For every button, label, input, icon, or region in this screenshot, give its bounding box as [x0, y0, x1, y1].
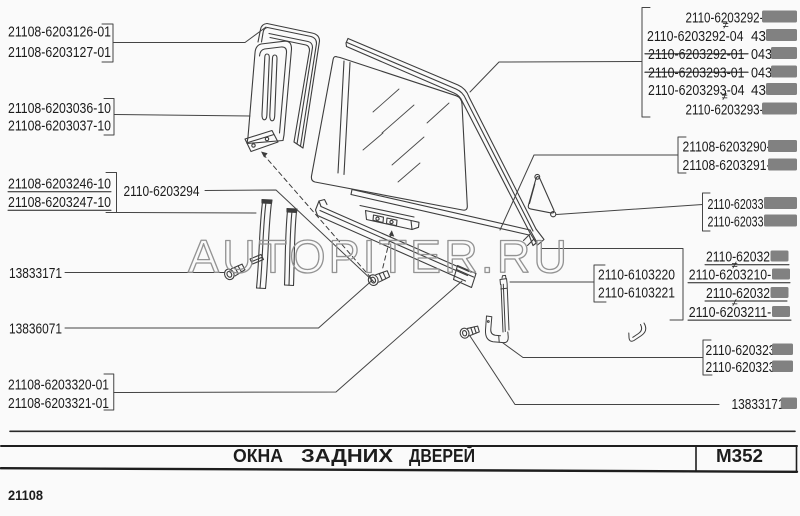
svg-text:2110-620323: 2110-620323	[706, 343, 776, 359]
svg-text:2110-6203292-01: 2110-6203292-01	[648, 47, 745, 63]
svg-text:2110-6203293-04: 2110-6203293-04	[648, 83, 745, 99]
svg-text:21108-6203126-01: 21108-6203126-01	[8, 25, 111, 41]
svg-text:43: 43	[751, 29, 766, 45]
svg-text:2110-62033: 2110-62033	[708, 215, 764, 231]
svg-text:21108-6203247-10: 21108-6203247-10	[8, 195, 111, 211]
svg-text:2110-62033: 2110-62033	[708, 197, 764, 213]
svg-text:21108-6203321-01: 21108-6203321-01	[8, 396, 109, 412]
svg-text:13833171: 13833171	[732, 397, 785, 413]
svg-text:ЗАДНИХ: ЗАДНИХ	[301, 446, 393, 466]
svg-text:2110-6203294: 2110-6203294	[124, 184, 200, 200]
svg-text:43: 43	[751, 83, 766, 99]
svg-text:ДВЕРЕЙ: ДВЕРЕЙ	[409, 445, 475, 466]
svg-text:2110-6103221: 2110-6103221	[598, 286, 675, 302]
svg-text:2110-6203293-01: 2110-6203293-01	[648, 66, 745, 82]
svg-text:≠: ≠	[722, 91, 728, 103]
svg-text:21108-6203036-10: 21108-6203036-10	[8, 101, 111, 117]
svg-text:ОКНА: ОКНА	[233, 446, 283, 466]
svg-text:2110-6203211-: 2110-6203211-	[689, 305, 772, 321]
svg-text:043: 043	[751, 47, 772, 63]
svg-text:2110-620323: 2110-620323	[706, 360, 776, 376]
svg-text:21108-6203291-: 21108-6203291-	[683, 158, 771, 174]
svg-text:≠: ≠	[723, 20, 729, 32]
svg-text:21108-6203290-: 21108-6203290-	[683, 140, 771, 156]
svg-text:13836071: 13836071	[9, 322, 62, 338]
svg-text:21108-6203127-01: 21108-6203127-01	[8, 45, 111, 61]
svg-text:AUTOPITER.RU: AUTOPITER.RU	[188, 231, 570, 283]
svg-text:21108: 21108	[8, 488, 43, 503]
svg-text:13833171: 13833171	[9, 266, 62, 282]
svg-text:2110-62032: 2110-62032	[706, 286, 770, 302]
svg-text:2110-6103220: 2110-6103220	[598, 268, 675, 284]
svg-text:043: 043	[751, 66, 772, 82]
svg-text:21108-6203320-01: 21108-6203320-01	[8, 378, 109, 394]
svg-text:2110-6203292-04: 2110-6203292-04	[647, 29, 744, 45]
svg-text:2110-62032: 2110-62032	[706, 250, 770, 266]
svg-text:21108-6203037-10: 21108-6203037-10	[8, 119, 111, 135]
svg-text:М352: М352	[716, 446, 763, 466]
svg-text:21108-6203246-10: 21108-6203246-10	[8, 177, 111, 193]
svg-text:2110-6203293-: 2110-6203293-	[686, 103, 764, 119]
svg-text:2110-6203210-: 2110-6203210-	[689, 267, 772, 283]
